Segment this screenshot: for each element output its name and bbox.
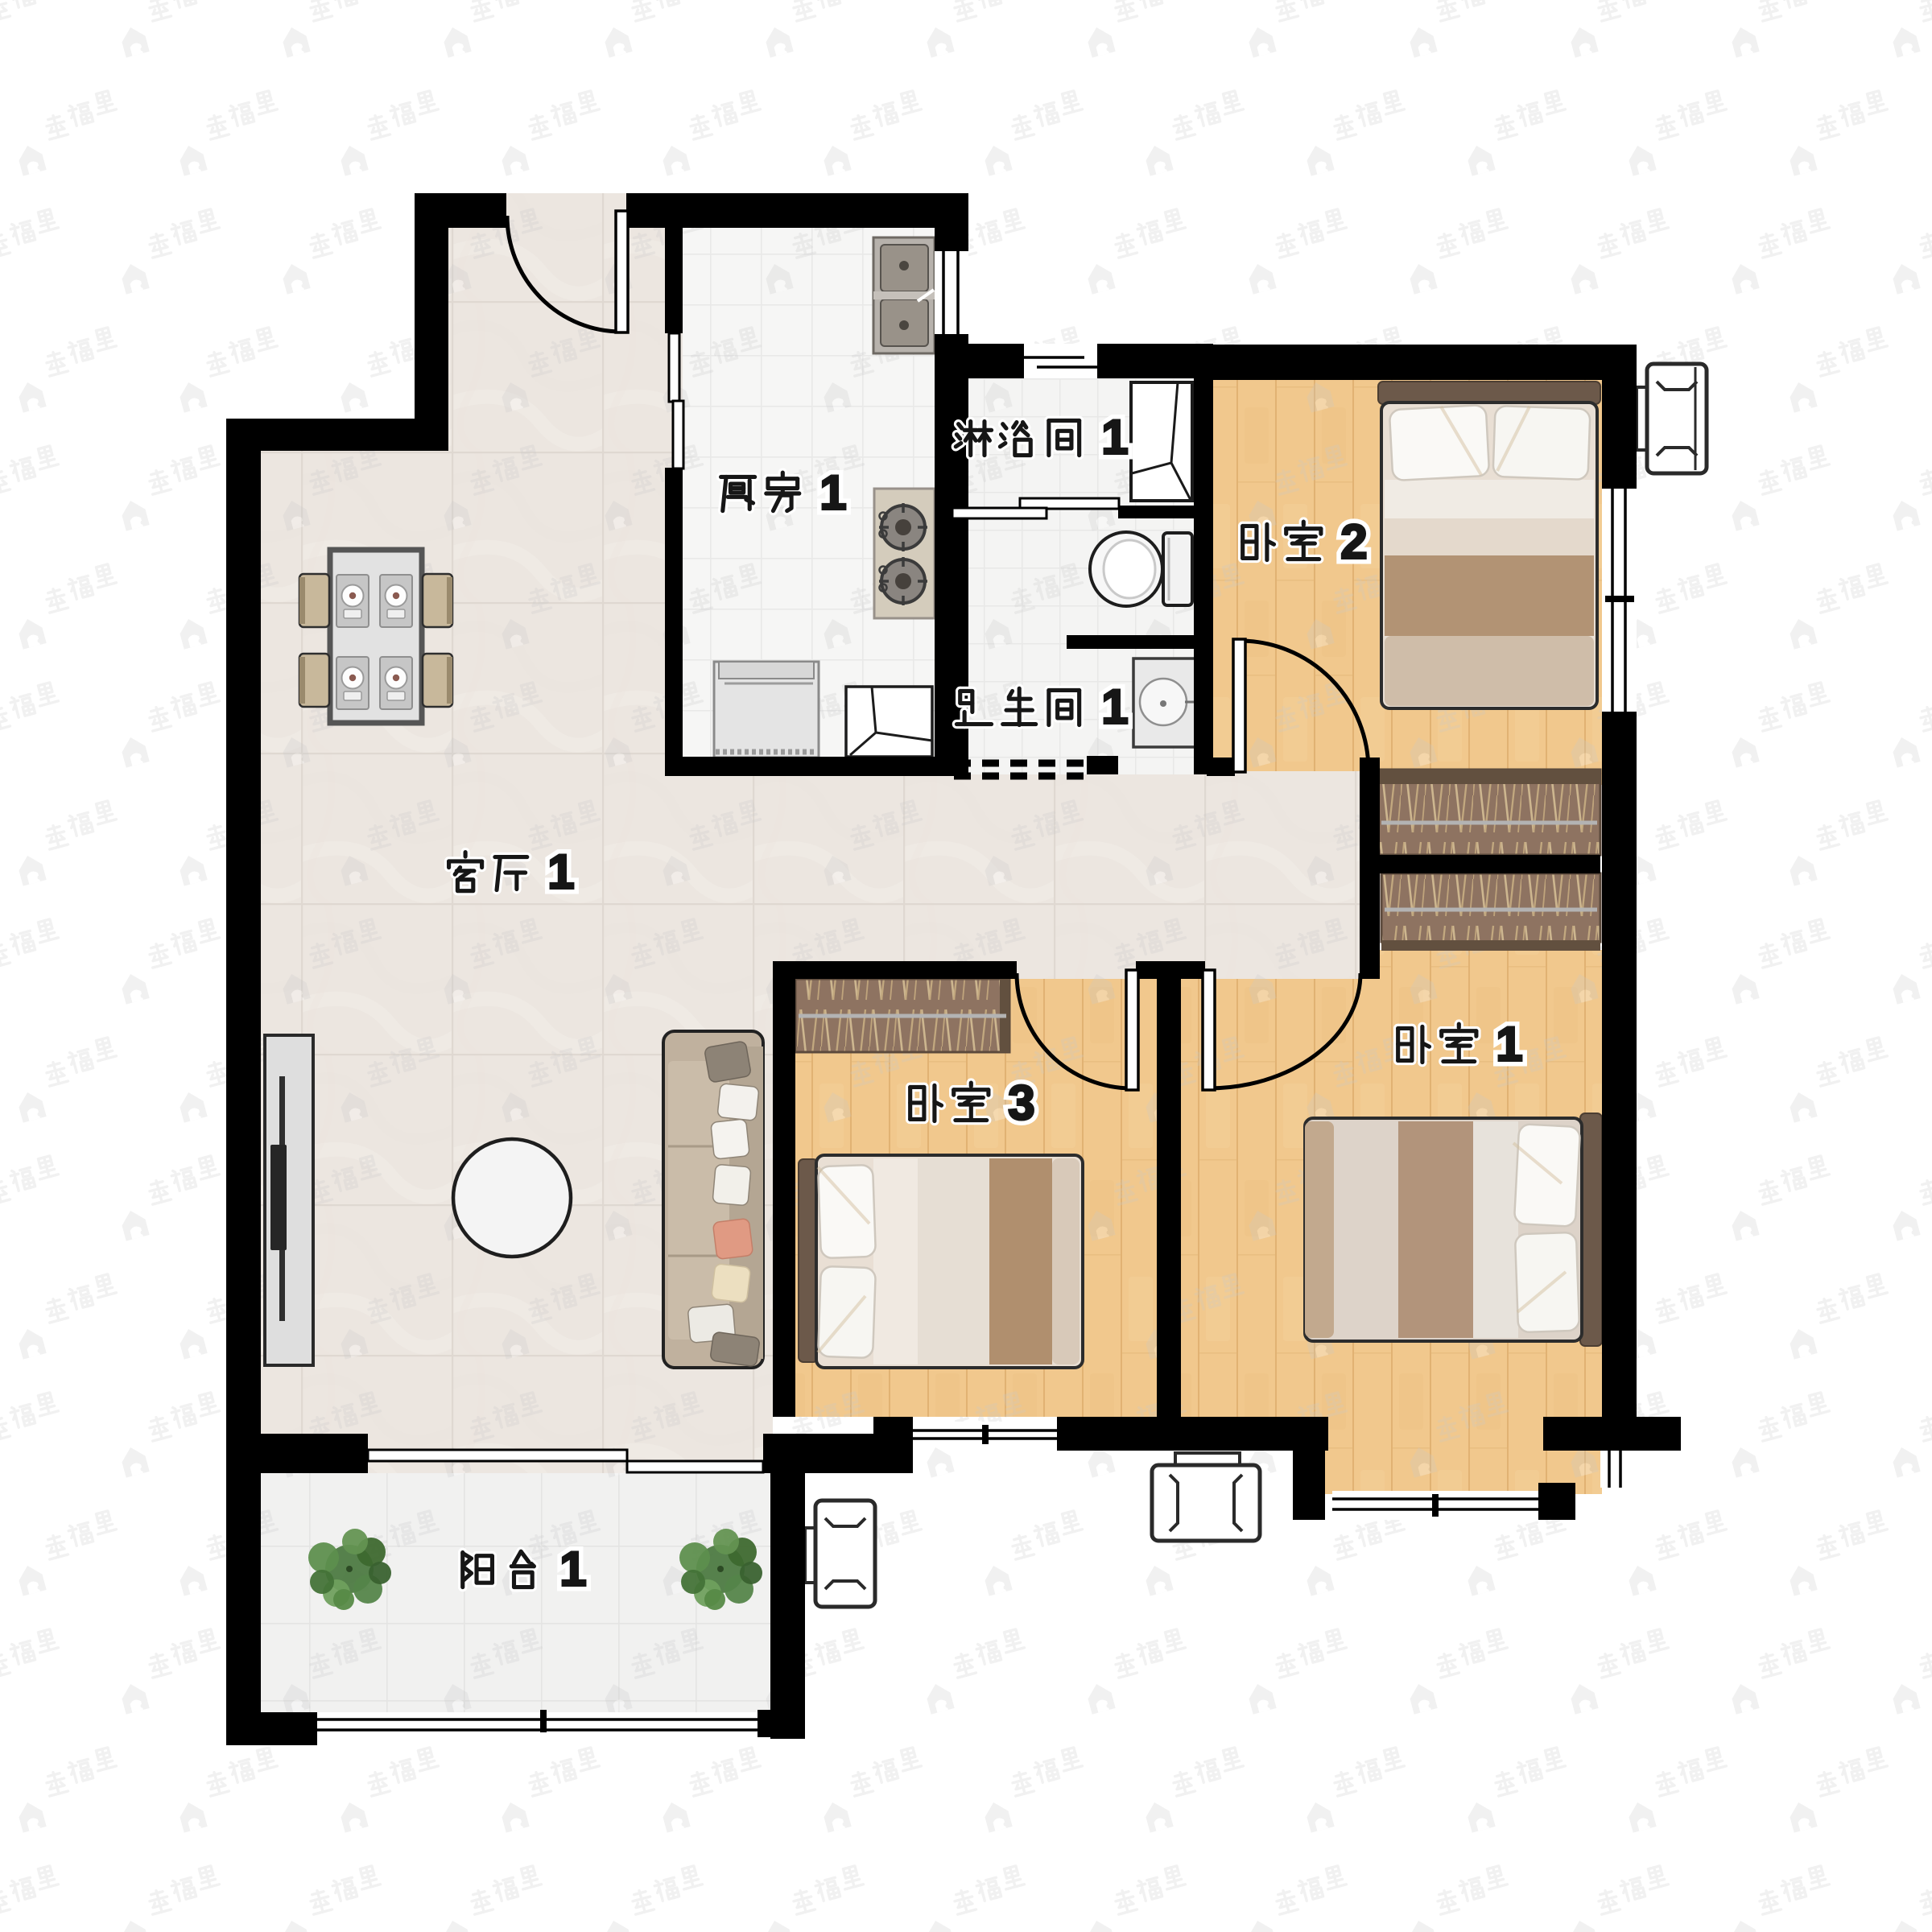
svg-text:1: 1 bbox=[1101, 410, 1128, 464]
svg-text:1: 1 bbox=[819, 465, 846, 519]
svg-text:1: 1 bbox=[1496, 1017, 1522, 1071]
svg-text:1: 1 bbox=[547, 844, 574, 898]
svg-text:1: 1 bbox=[1101, 679, 1128, 733]
svg-text:1: 1 bbox=[559, 1542, 586, 1596]
svg-text:3: 3 bbox=[1008, 1075, 1034, 1129]
svg-text:2: 2 bbox=[1340, 514, 1367, 568]
